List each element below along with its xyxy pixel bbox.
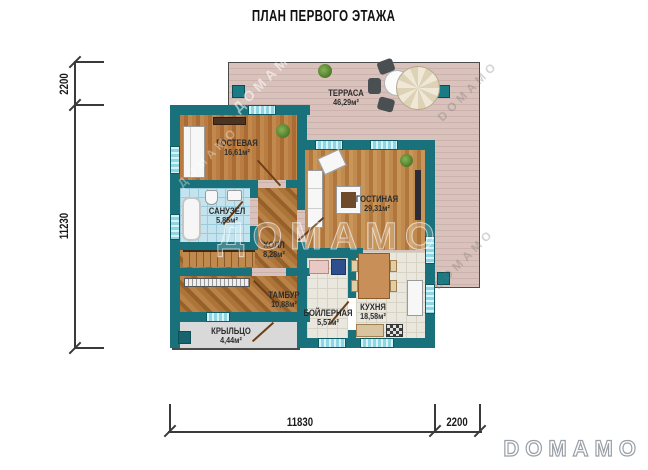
porch-post xyxy=(178,331,191,344)
sink-icon xyxy=(227,190,242,201)
wall-bath-right xyxy=(250,180,258,198)
dining-table-icon xyxy=(358,253,390,299)
room-area: 46,29м² xyxy=(312,98,380,108)
page-title: ПЛАН ПЕРВОГО ЭТАЖА xyxy=(0,8,648,26)
room-label-guest: ГОСТЕВАЯ 16,61м² xyxy=(197,138,277,158)
washer-icon xyxy=(309,260,329,274)
window xyxy=(170,214,180,240)
room-label-porch: КРЫЛЬЦО 4,44м² xyxy=(191,326,271,346)
room-label-living: ГОСТИНАЯ 29,31м² xyxy=(337,194,417,214)
dimension-value-bottom-right: 2200 xyxy=(437,415,477,429)
floor-plan-page: ПЛАН ПЕРВОГО ЭТАЖА xyxy=(0,0,648,470)
chair-icon xyxy=(351,280,358,292)
dimension-extension xyxy=(74,347,104,349)
room-area: 29,31м² xyxy=(343,204,411,214)
plant-icon xyxy=(276,124,290,138)
dimension-value-left-main: 11230 xyxy=(57,206,71,246)
stove-icon xyxy=(386,324,403,337)
shelf-icon xyxy=(213,117,246,125)
chair-icon xyxy=(390,260,397,272)
toilet-icon xyxy=(205,190,218,205)
room-area: 4,44м² xyxy=(197,336,265,346)
plant-icon xyxy=(400,154,413,167)
radiator-icon xyxy=(184,278,250,287)
dimension-extension xyxy=(74,61,104,63)
window xyxy=(318,338,346,348)
room-area: 8,28м² xyxy=(245,250,303,260)
dimension-extension xyxy=(74,104,104,106)
window xyxy=(170,146,180,174)
dimension-value-bottom-main: 11830 xyxy=(260,415,340,429)
window xyxy=(248,105,276,115)
room-label-kitchen: КУХНЯ 18,58м² xyxy=(333,302,413,322)
room-area: 16,61м² xyxy=(203,148,271,158)
chair-icon xyxy=(390,280,397,292)
window xyxy=(425,236,435,264)
dimension-value-left-top: 2200 xyxy=(57,68,71,100)
window xyxy=(370,140,398,150)
room-area: 5,85м² xyxy=(193,216,261,226)
window xyxy=(425,284,435,314)
window xyxy=(206,312,230,322)
room-label-terrace: ТЕРРАСА 46,29м² xyxy=(306,88,386,108)
wall-boiler-right xyxy=(348,330,356,348)
terrace-post xyxy=(232,85,245,98)
wall-tambour-top xyxy=(170,268,252,276)
chair-icon xyxy=(351,260,358,272)
window xyxy=(360,338,394,348)
page-title-text: ПЛАН ПЕРВОГО ЭТАЖА xyxy=(252,8,395,26)
wall-guest-bottom xyxy=(286,180,305,188)
domamo-logo: DOMAMO xyxy=(492,436,642,462)
boiler-unit-icon xyxy=(331,259,346,275)
wall-guest-bottom xyxy=(170,180,258,188)
room-area: 18,58м² xyxy=(339,312,407,322)
parasol-icon xyxy=(396,66,440,110)
room-label-bathroom: САНУЗЕЛ 5,85м² xyxy=(187,206,267,226)
room-label-hall: ХОЛЛ 8,28м² xyxy=(240,240,308,260)
terrace-post xyxy=(437,272,450,285)
plant-icon xyxy=(318,64,332,78)
wall-top-left xyxy=(170,105,310,115)
